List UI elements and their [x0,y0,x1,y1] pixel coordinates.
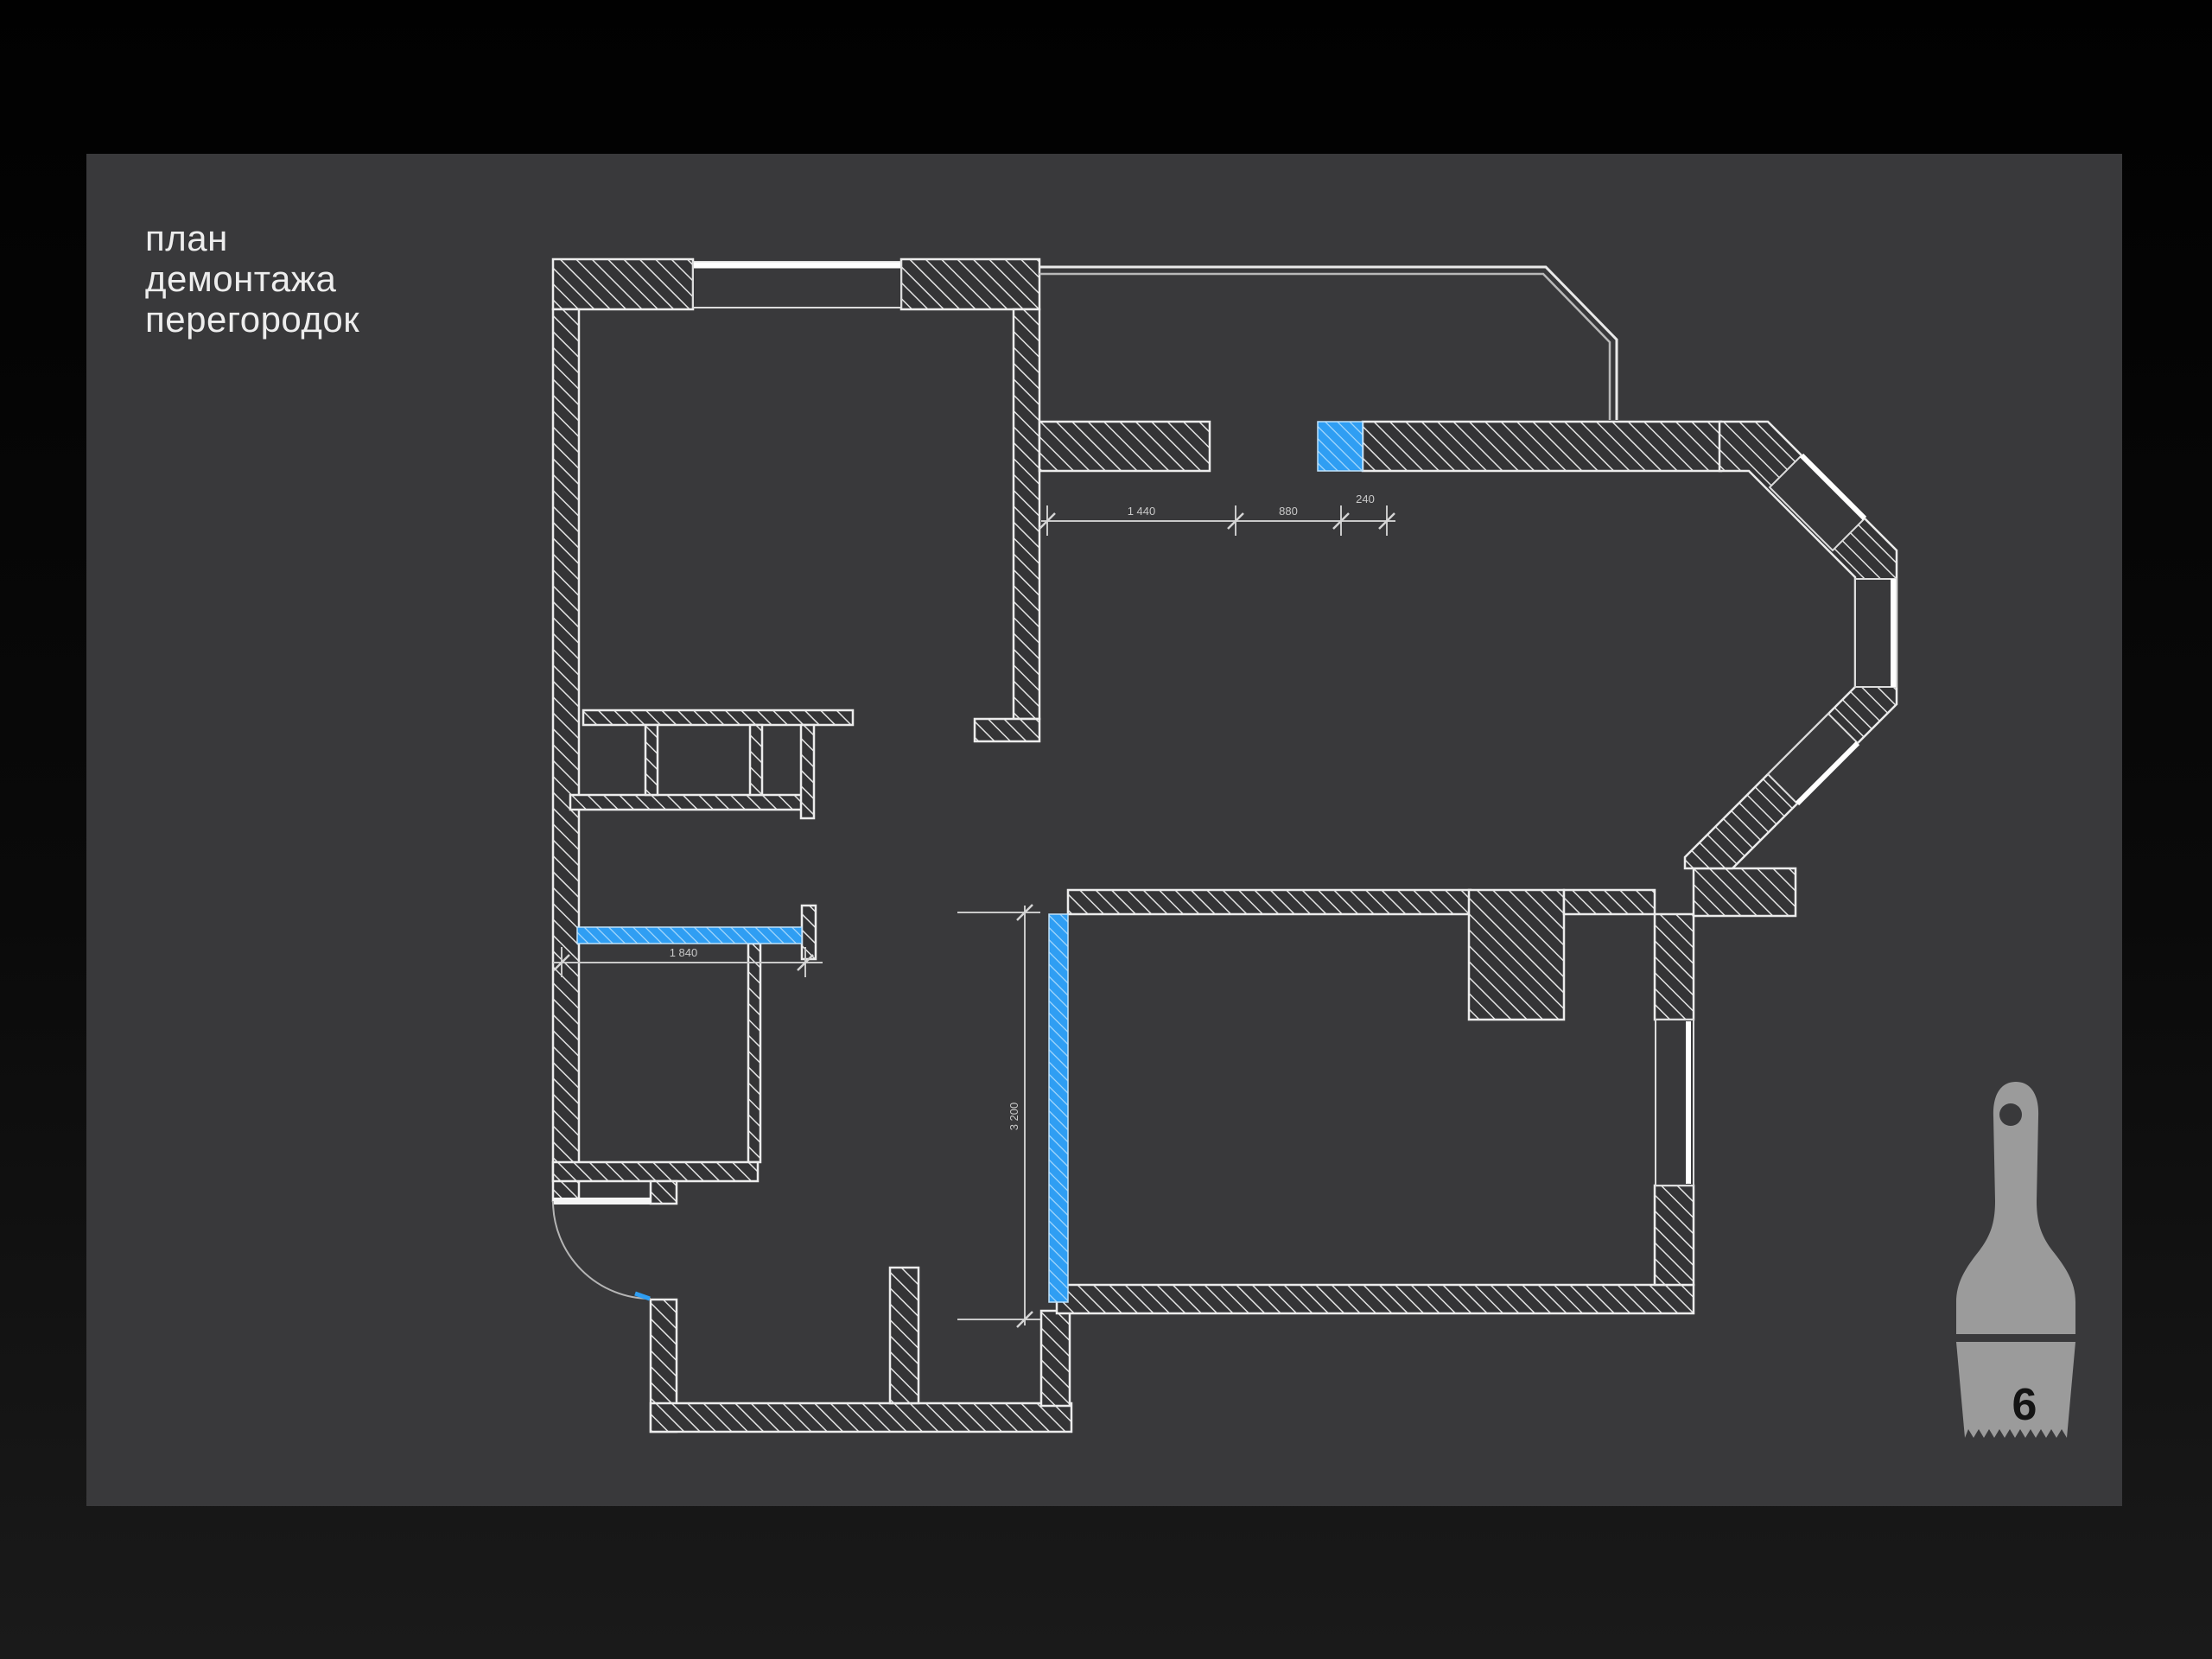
title-line-2: демонтажа [145,258,337,299]
dim-label-880: 880 [1279,505,1298,518]
demolition-partition-top [1318,422,1363,471]
dim-label-240: 240 [1356,493,1375,505]
window-bedroom-right [1656,1020,1694,1185]
brush-hole [1999,1103,2022,1126]
window-bay-vertical [1855,579,1897,687]
demolition-partition-closet [577,927,802,944]
dim-label-1440: 1 440 [1128,505,1156,518]
demolition-partition-vertical [1049,914,1068,1302]
dim-label-1840: 1 840 [670,946,698,959]
window-top-left [693,262,901,308]
title-line-1: план [145,218,228,258]
title-line-3: перегородок [145,299,359,340]
dim-label-3200: 3 200 [1007,1103,1020,1131]
slide-canvas: план демонтажа перегородок [0,0,2212,1659]
brush-ferrule-gap [1956,1334,2075,1342]
page-number: 6 [2012,1380,2037,1430]
slide-stage: план демонтажа перегородок [0,0,2212,1659]
